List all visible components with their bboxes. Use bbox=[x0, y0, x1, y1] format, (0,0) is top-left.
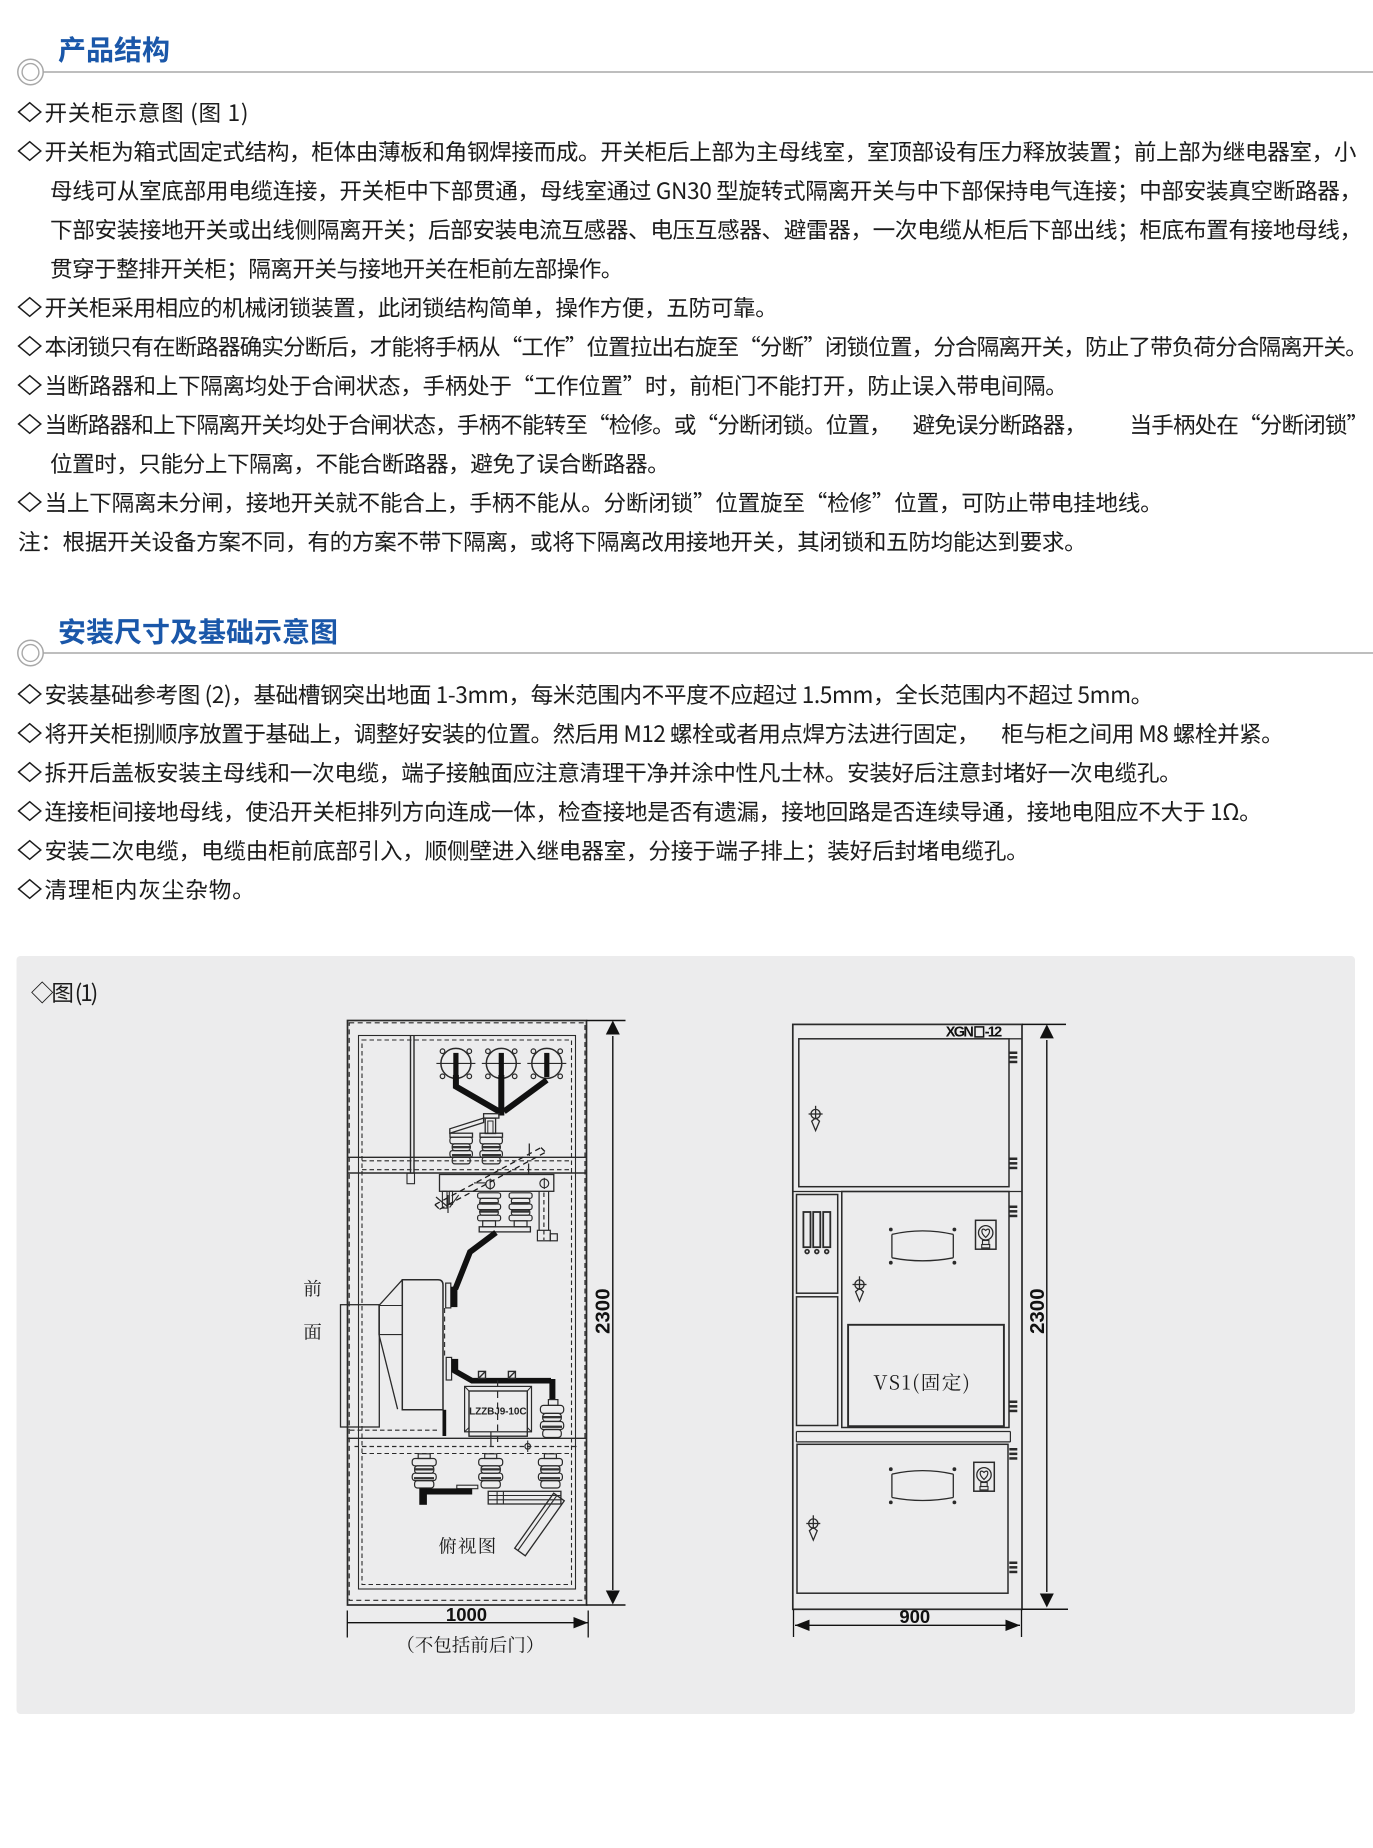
svg-text:XGN: XGN bbox=[946, 1025, 974, 1041]
svg-text:1000: 1000 bbox=[446, 1604, 487, 1625]
svg-text:2300: 2300 bbox=[1026, 1288, 1049, 1334]
svg-text:900: 900 bbox=[899, 1606, 930, 1627]
svg-text:2300: 2300 bbox=[592, 1288, 615, 1334]
svg-text:LZZBJ9-10C: LZZBJ9-10C bbox=[469, 1407, 526, 1418]
svg-text:-12: -12 bbox=[985, 1025, 1003, 1041]
